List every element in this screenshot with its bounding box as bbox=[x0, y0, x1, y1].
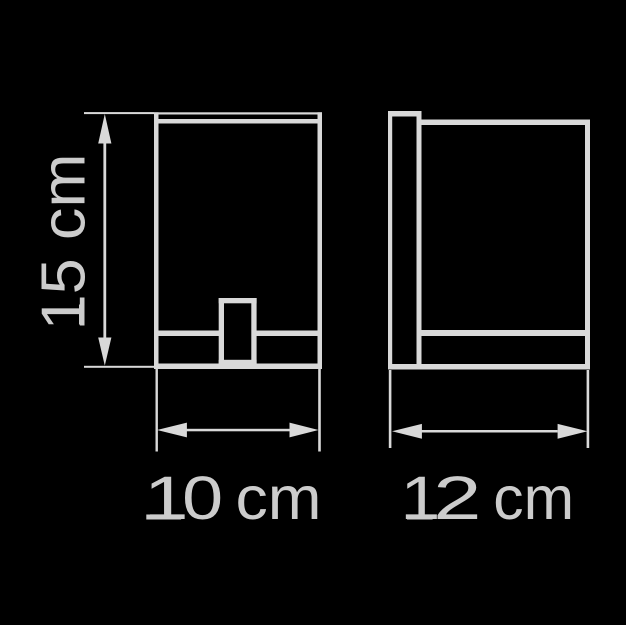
svg-text:2: 2 bbox=[433, 464, 481, 532]
svg-text:cm: cm bbox=[493, 464, 574, 532]
svg-text:15 cm: 15 cm bbox=[29, 154, 99, 331]
svg-text:cm: cm bbox=[236, 464, 322, 532]
svg-text:0: 0 bbox=[182, 464, 223, 532]
